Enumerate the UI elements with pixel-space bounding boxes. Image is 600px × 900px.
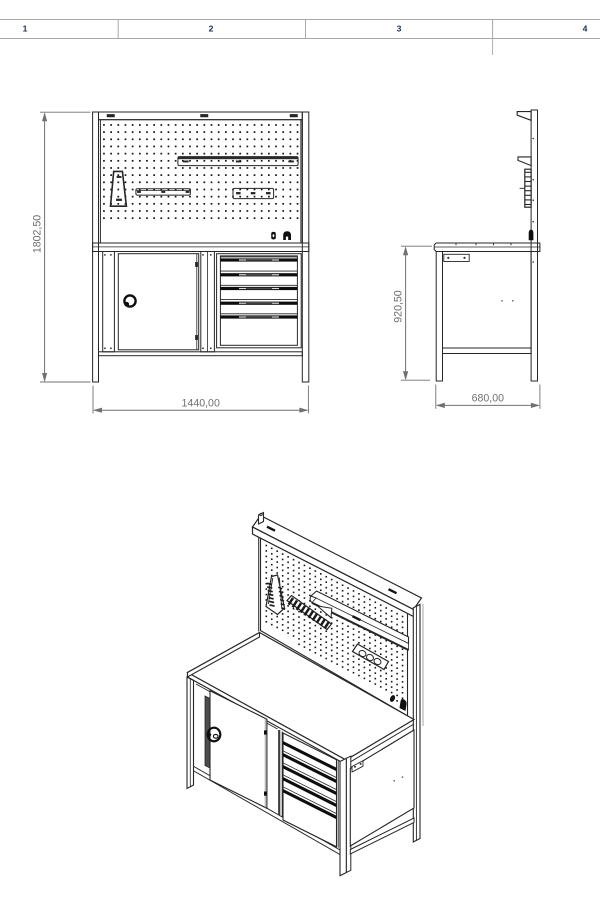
svg-text:2: 2: [209, 24, 214, 34]
svg-text:1440,00: 1440,00: [182, 397, 220, 409]
svg-text:3: 3: [397, 24, 402, 34]
svg-text:1802,50: 1802,50: [31, 215, 43, 253]
svg-text:680,00: 680,00: [472, 393, 505, 405]
svg-text:1: 1: [23, 24, 28, 34]
svg-text:4: 4: [583, 24, 588, 34]
svg-text:920,50: 920,50: [392, 290, 404, 323]
